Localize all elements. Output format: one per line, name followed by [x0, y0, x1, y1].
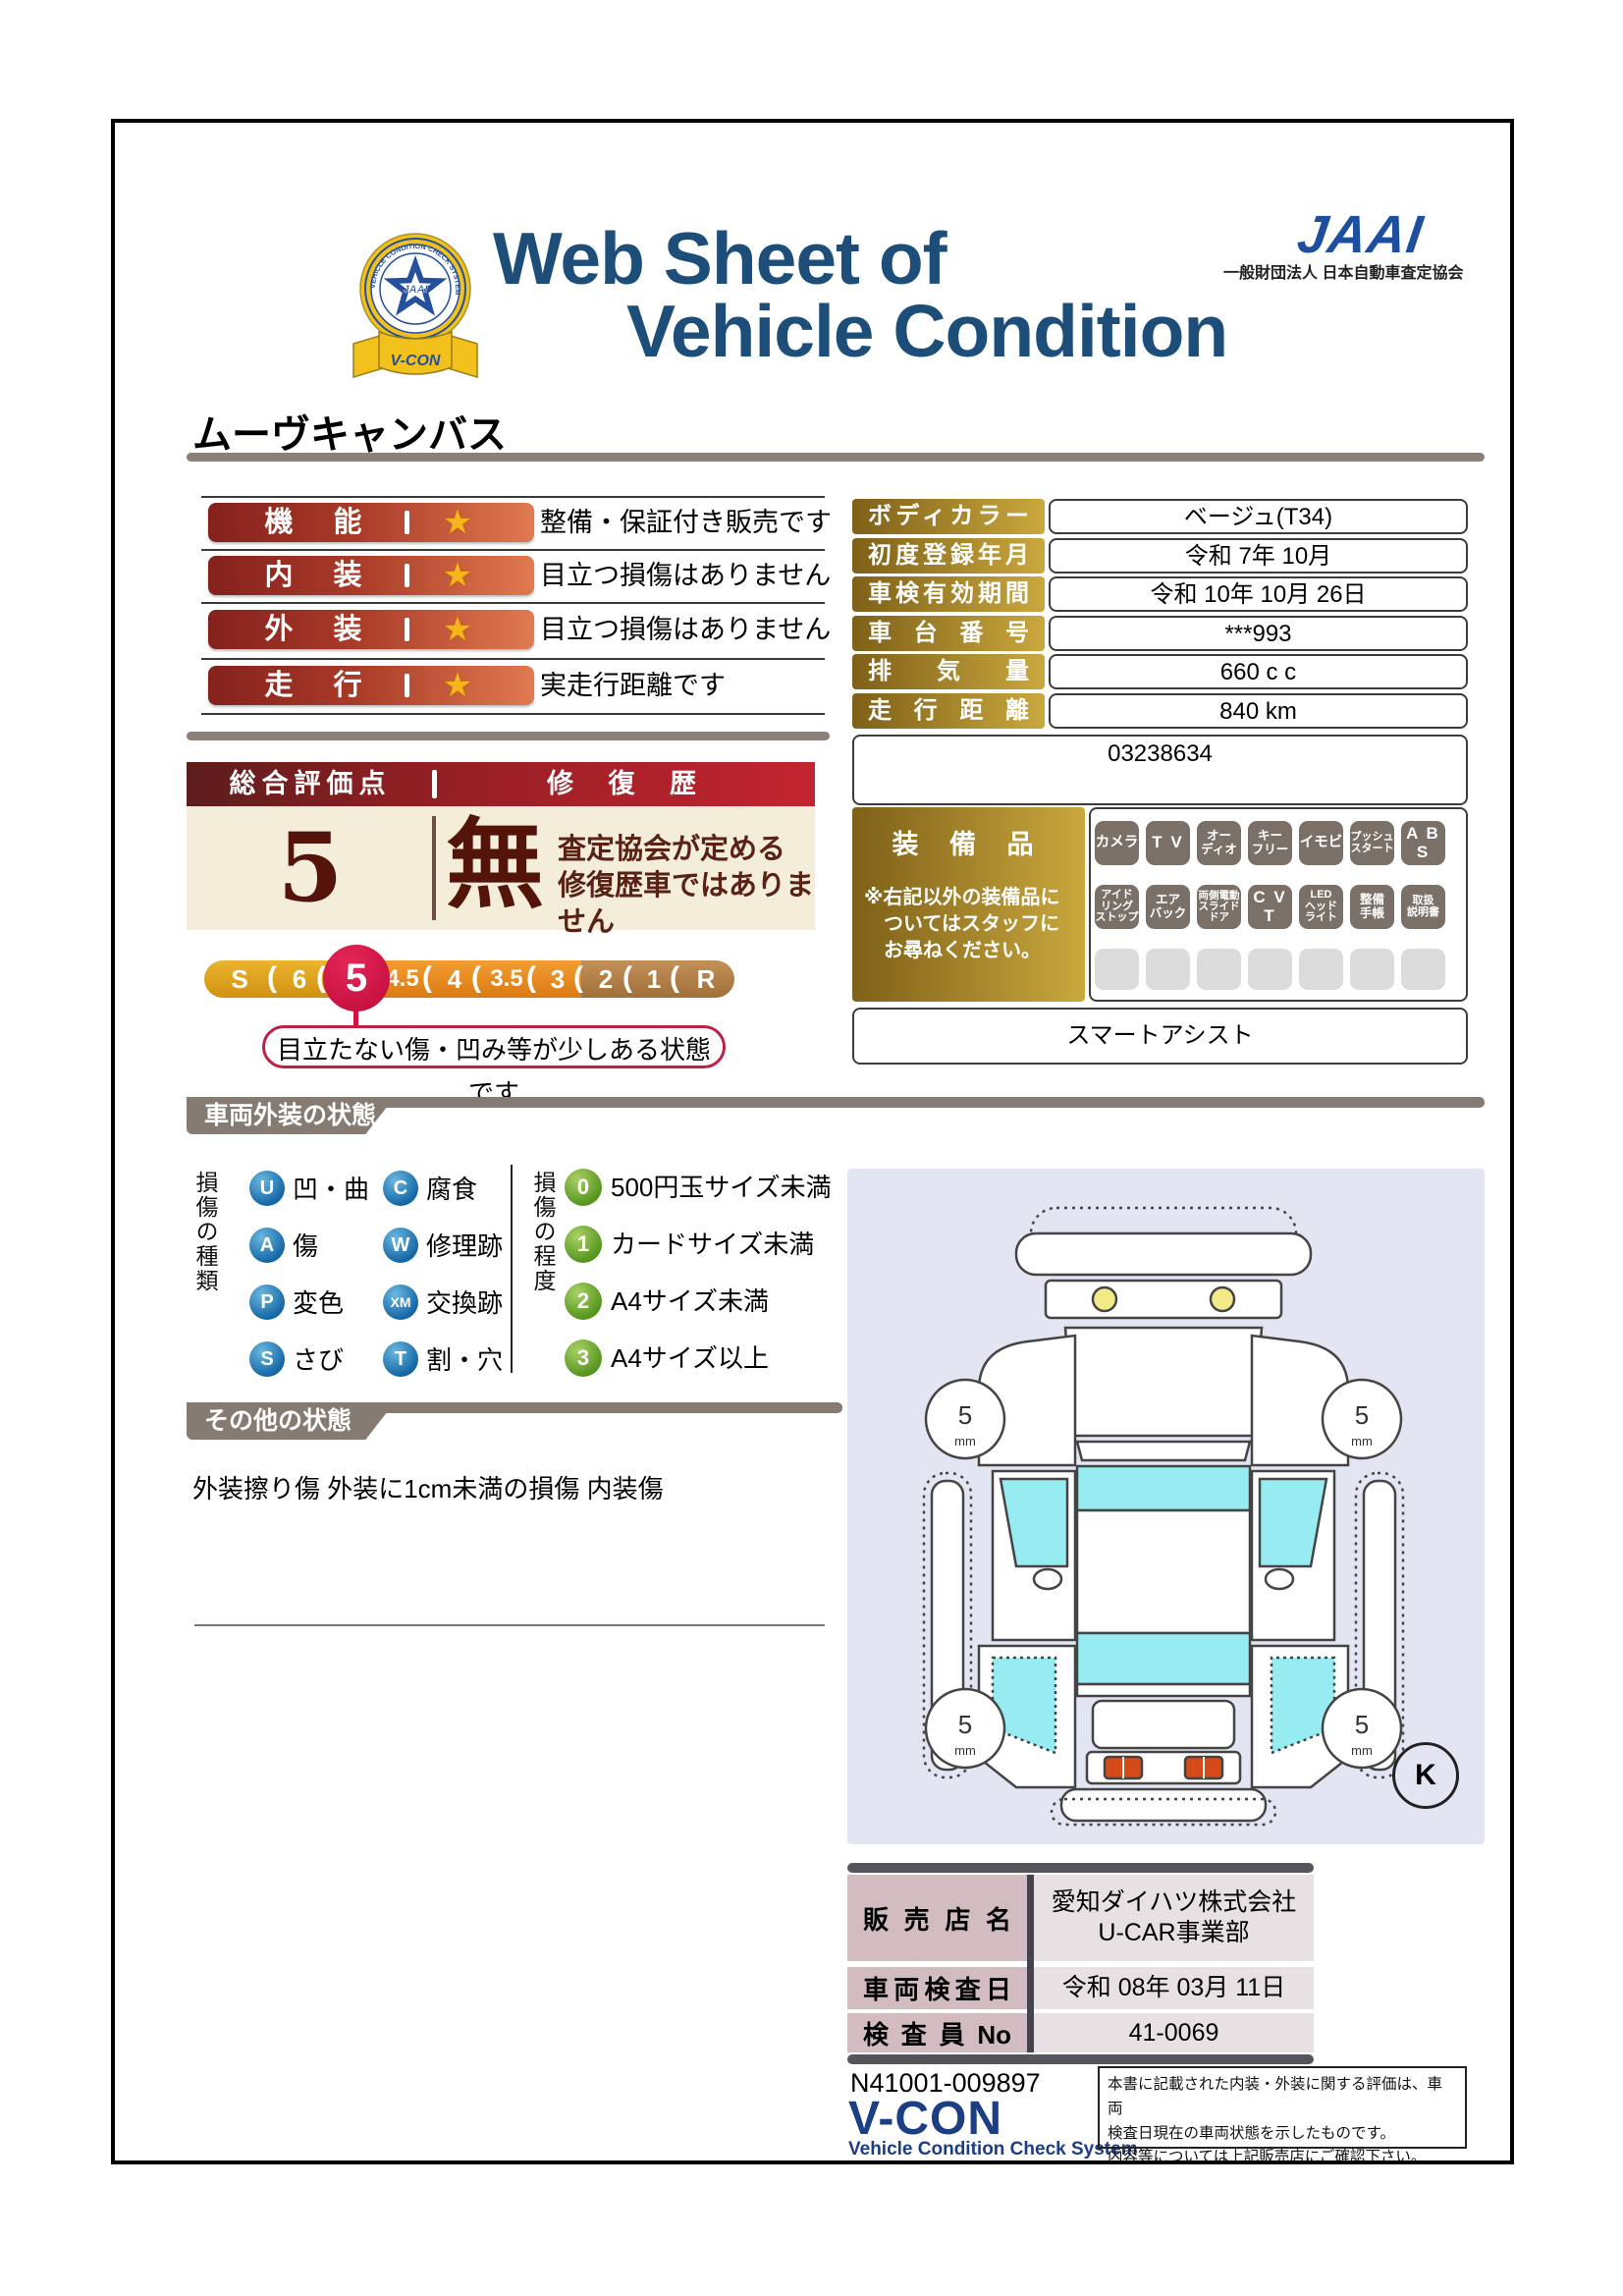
- dealer-value-shop-name: 愛知ダイハツ株式会社 U-CAR事業部: [1034, 1875, 1314, 1961]
- rating-row-interior: 内 装 ★: [208, 556, 534, 595]
- tire-tread-value: 5: [958, 1710, 972, 1739]
- dealer-table-bottom-bar: [847, 2054, 1314, 2064]
- damage-type-badge-XM: XM: [383, 1285, 418, 1320]
- damage-type-label: 傷: [293, 1228, 318, 1265]
- repair-note: 査定協会が定める 修復歴車ではありません: [558, 832, 815, 941]
- pill-divider: [405, 674, 409, 697]
- damage-degree-label: 500円玉サイズ未満: [611, 1169, 832, 1206]
- damage-type-badge-C: C: [383, 1171, 418, 1206]
- divider-ratings-bottom: [187, 732, 830, 740]
- damage-type-label: 割・穴: [426, 1341, 503, 1379]
- equipment-panel: 装 備 品 ※右記以外の装備品に ついてはスタッフに お尋ねください。: [852, 807, 1085, 1002]
- vcon-emblem-logo: VEHICLE CONDITION CHECK SYSTEM JAAI V-CO…: [342, 218, 489, 390]
- rating-comment: 目立つ損傷はありません: [540, 556, 831, 595]
- damage-degree-badge-3: 3: [565, 1339, 602, 1377]
- dealer-table-divider: [1027, 1875, 1034, 2052]
- pill-divider: [405, 564, 409, 587]
- damage-type-label: 修理跡: [426, 1228, 503, 1265]
- tire-tread-unit: mm: [1351, 1743, 1373, 1758]
- rating-comment: 目立つ損傷はありません: [540, 610, 831, 649]
- damage-type-badge-T: T: [383, 1341, 418, 1377]
- exterior-banner-text: 車両外装の状態: [204, 1097, 376, 1134]
- damage-degree-title: 損傷の程度: [526, 1171, 560, 1293]
- pill-divider: [405, 618, 409, 641]
- legend-divider: [511, 1165, 513, 1373]
- rating-comment: 実走行距離です: [540, 666, 726, 705]
- dealer-table-top-bar: [847, 1863, 1314, 1873]
- jaai-tagline: 一般財団法人 日本自動車査定協会: [1223, 259, 1463, 283]
- equipment-badge-led-headlight: LED ヘッド ライト: [1299, 885, 1343, 929]
- damage-type-label: 腐食: [426, 1171, 477, 1208]
- damage-degree-label: カードサイズ未満: [611, 1226, 814, 1263]
- info-value-first-registration: 令和 7年 10月: [1049, 538, 1468, 574]
- damage-degree-badge-2: 2: [565, 1283, 602, 1320]
- info-label-chassis-number: 車台番号: [852, 616, 1045, 651]
- info-label-displacement: 排気量: [852, 654, 1045, 689]
- equipment-title: 装 備 品: [852, 807, 1085, 861]
- damage-type-badge-S: S: [249, 1341, 285, 1377]
- star-icon: ★: [428, 610, 487, 649]
- equipment-badge-immobilizer: イモビ: [1299, 821, 1343, 865]
- overall-header-divider: [432, 770, 437, 798]
- smart-assist-box: スマートアシスト: [852, 1008, 1468, 1065]
- equipment-badge-keyfree: キー フリー: [1248, 821, 1292, 865]
- tire-tread-value: 5: [958, 1400, 972, 1430]
- equipment-badge-owners-manual: 取扱 説明書: [1401, 885, 1445, 929]
- grade-R: (R: [677, 960, 734, 998]
- equipment-badge-empty: [1299, 949, 1343, 990]
- damage-type-badge-U: U: [249, 1171, 285, 1206]
- star-icon: ★: [428, 503, 487, 542]
- dealer-label-inspector-no: 検査員No: [847, 2013, 1027, 2052]
- damage-type-badge-W: W: [383, 1228, 418, 1263]
- front-right-wheel: 5 mm: [1323, 1380, 1401, 1458]
- rear-right-wheel: 5 mm: [1323, 1689, 1401, 1768]
- headlight-panel: [1046, 1281, 1281, 1318]
- ratings-separator: [201, 496, 825, 498]
- info-value-displacement: 660 c c: [1049, 654, 1468, 689]
- selected-grade-circle: 5: [323, 945, 390, 1011]
- tire-tread-unit: mm: [954, 1434, 976, 1449]
- star-icon: ★: [428, 666, 487, 705]
- equipment-badge-empty: [1095, 949, 1139, 990]
- overall-score-body: 5 無 査定協会が定める 修復歴車ではありません: [187, 806, 815, 930]
- ratings-separator: [201, 549, 825, 551]
- equipment-badge-empty: [1197, 949, 1241, 990]
- repair-history-title: 修 復 歴: [442, 762, 815, 806]
- overall-body-divider: [432, 816, 436, 920]
- roof-rear-glass: [1077, 1633, 1250, 1684]
- rating-row-mileage: 走 行 ★: [208, 666, 534, 705]
- equipment-badge-abs: A B S: [1401, 821, 1445, 865]
- tire-tread-value: 5: [1355, 1400, 1369, 1430]
- repair-flag: 無: [446, 810, 544, 920]
- reference-number-box: 03238634: [852, 735, 1468, 805]
- rating-label: 走 行: [228, 666, 405, 705]
- grade-callout: 目立たない傷・凹み等が少しある状態です: [262, 1025, 726, 1068]
- equipment-badge-maintenance-book: 整備 手帳: [1350, 885, 1394, 929]
- tailgate: [1093, 1701, 1234, 1748]
- rating-label: 内 装: [228, 556, 405, 595]
- equipment-badge-idling-stop: アイド リング ストップ: [1095, 885, 1139, 929]
- damage-type-label: 交換跡: [426, 1285, 503, 1322]
- rating-row-exterior: 外 装 ★: [208, 610, 534, 649]
- front-bumper: [1016, 1233, 1311, 1275]
- rating-label: 外 装: [228, 610, 405, 649]
- dealer-label-inspection-date: 車両検査日: [847, 1967, 1027, 2009]
- rating-comment: 整備・保証付き販売です: [540, 503, 832, 542]
- grade-scale-bar: S (6 (5 (4.5 (4 (3.5 (3 (2 (1 (R: [204, 960, 734, 998]
- car-unfolded-diagram: 5 mm 5 mm 5 mm 5 mm: [869, 1178, 1458, 1827]
- vcon-subtitle: Vehicle Condition Check System: [848, 2139, 1138, 2160]
- rating-label: 機 能: [228, 503, 405, 542]
- star-icon: ★: [428, 556, 487, 595]
- info-value-body-color: ベージュ(T34): [1049, 499, 1468, 534]
- equipment-badge-cvt: C V T: [1248, 885, 1292, 929]
- equipment-note: ※右記以外の装備品に ついてはスタッフに お尋ねください。: [852, 885, 1085, 964]
- damage-degree-label: A4サイズ未満: [611, 1283, 769, 1320]
- rear-left-wheel: 5 mm: [926, 1689, 1004, 1768]
- page-title-line2: Vehicle Condition: [626, 295, 1227, 368]
- windshield: [1065, 1328, 1262, 1436]
- equipment-badge-empty: [1401, 949, 1445, 990]
- info-label-mileage: 走行距離: [852, 693, 1045, 729]
- damage-degree-label: A4サイズ以上: [611, 1339, 769, 1377]
- equipment-badge-tv: T V: [1146, 821, 1190, 865]
- equipment-badge-audio: オー ディオ: [1197, 821, 1241, 865]
- vehicle-name: ムーヴキャンバス: [192, 403, 507, 460]
- tire-tread-unit: mm: [1351, 1434, 1373, 1449]
- headlight-left-icon: [1093, 1287, 1116, 1311]
- info-label-first-registration: 初度登録年月: [852, 538, 1045, 574]
- vcon-logo: V-CON: [848, 2092, 1002, 2146]
- emblem-jaai-text: JAAI: [403, 284, 428, 296]
- other-status-text: 外装擦り傷 外装に1cm未満の損傷 内装傷: [192, 1469, 664, 1505]
- front-left-wheel: 5 mm: [926, 1380, 1004, 1458]
- damage-type-label: 変色: [293, 1285, 344, 1322]
- rating-row-function: 機 能 ★: [208, 503, 534, 542]
- inspection-marker-k: K: [1392, 1742, 1459, 1809]
- damage-type-label: 凹・曲: [293, 1171, 369, 1208]
- other-status-banner-text: その他の状態: [204, 1402, 352, 1440]
- equipment-badge-push-start: プッシュ スタート: [1350, 821, 1394, 865]
- damage-degree-badge-1: 1: [565, 1226, 602, 1263]
- damage-type-title: 損傷の種類: [189, 1171, 222, 1293]
- tire-tread-value: 5: [1355, 1710, 1369, 1739]
- damage-type-badge-P: P: [249, 1285, 285, 1320]
- info-label-inspection-valid: 車検有効期間: [852, 576, 1045, 612]
- headlight-right-icon: [1211, 1287, 1234, 1311]
- overall-score-title: 総合評価点: [187, 762, 434, 806]
- info-value-inspection-valid: 令和 10年 10月 26日: [1049, 576, 1468, 612]
- info-value-mileage: 840 km: [1049, 693, 1468, 729]
- damage-type-label: さび: [293, 1341, 344, 1379]
- dealer-value-inspector-no: 41-0069: [1034, 2013, 1314, 2052]
- other-status-underline: [194, 1624, 825, 1626]
- rear-bumper: [1061, 1789, 1266, 1821]
- divider-top: [187, 453, 1485, 462]
- cowl-panel: [1077, 1442, 1250, 1460]
- equipment-badge-empty: [1350, 949, 1394, 990]
- overall-score-value: 5: [187, 814, 434, 922]
- equipment-badge-airbag: エア バック: [1146, 885, 1190, 929]
- roof-panel: [1077, 1510, 1250, 1633]
- info-value-chassis-number: ***993: [1049, 616, 1468, 651]
- overall-score-header: 総合評価点 修 復 歴: [187, 762, 815, 806]
- dealer-value-inspection-date: 令和 08年 03月 11日: [1034, 1967, 1314, 2009]
- pill-divider: [405, 511, 409, 534]
- page-title-line1: Web Sheet of: [493, 222, 947, 296]
- tire-tread-unit: mm: [954, 1743, 976, 1758]
- roof-rear-edge: [1077, 1684, 1250, 1696]
- equipment-badge-empty: [1248, 949, 1292, 990]
- equipment-badge-power-slide-door: 両側電動 スライド ドア: [1197, 885, 1241, 929]
- grade-S: S: [204, 960, 275, 998]
- roof-front-glass: [1077, 1466, 1250, 1510]
- jaai-logo: JAAI: [1294, 204, 1428, 265]
- emblem-ribbon-text: V-CON: [391, 353, 441, 369]
- ratings-separator: [201, 602, 825, 604]
- info-label-body-color: ボディカラー: [852, 499, 1045, 534]
- footer-disclaimer-box: 本書に記載された内装・外装に関する評価は、車両 検査日現在の車両状態を示したもの…: [1098, 2066, 1467, 2149]
- equipment-badge-empty: [1146, 949, 1190, 990]
- dealer-label-shop-name: 販売店名: [847, 1875, 1027, 1961]
- damage-degree-badge-0: 0: [565, 1169, 602, 1206]
- ratings-separator: [201, 658, 825, 660]
- equipment-badge-camera: カメラ: [1095, 821, 1139, 865]
- right-mirror: [1266, 1569, 1293, 1589]
- left-mirror: [1034, 1569, 1061, 1589]
- ratings-separator: [201, 713, 825, 715]
- damage-type-badge-A: A: [249, 1228, 285, 1263]
